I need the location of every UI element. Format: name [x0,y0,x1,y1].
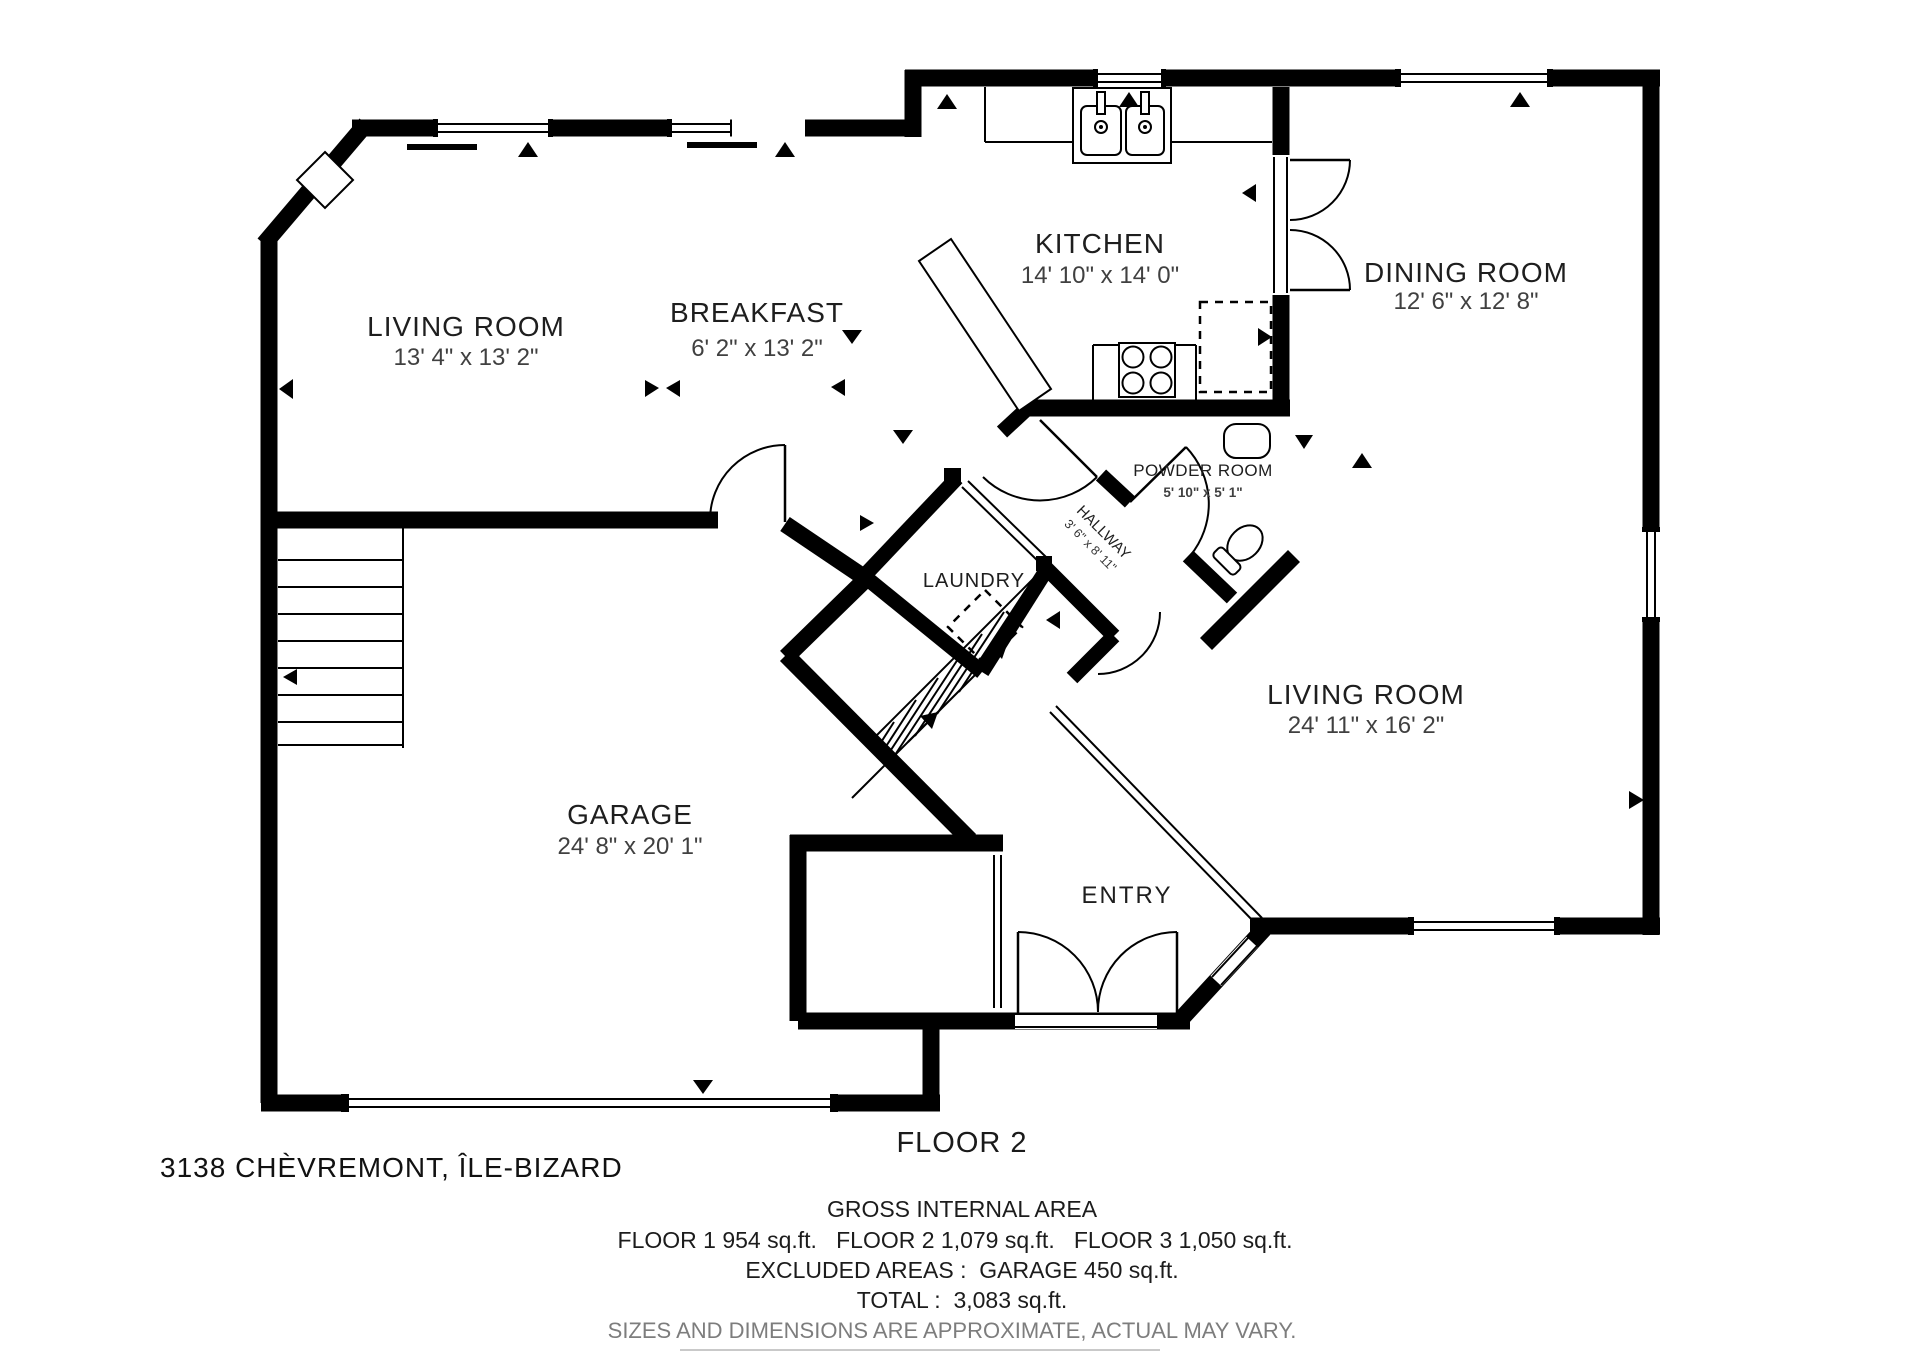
double-sink [1073,88,1171,163]
total-area-line: TOTAL : 3,083 sq.ft. [857,1287,1068,1313]
label-kitchen: KITCHEN [1035,228,1165,259]
label-dining-room: DINING ROOM [1364,257,1568,288]
label-entry: ENTRY [1082,882,1173,909]
cooktop-stove [1119,343,1175,397]
dims-living-room-right: 24' 11" x 16' 2" [1288,712,1445,739]
door-hallway-top [983,420,1097,500]
door-entry-double [1015,932,1177,1029]
address: 3138 CHÈVREMONT, ÎLE-BIZARD [160,1152,623,1183]
window-kitchen-sink [1093,69,1166,87]
dims-garage: 24' 8" x 20' 1" [558,833,703,860]
door-kitchen-dining-double [1271,155,1350,295]
toilet [1212,518,1270,576]
captions: FLOOR 2 3138 CHÈVREMONT, ÎLE-BIZARD [160,1127,1028,1183]
dims-breakfast: 6' 2" x 13' 2" [691,335,823,362]
window-living-right-wall [1642,527,1660,622]
dims-kitchen: 14' 10" x 14' 0" [1021,262,1179,289]
footer-area-summary: GROSS INTERNAL AREA FLOOR 1 954 sq.ft. F… [608,1196,1297,1350]
window-living-bottom [1408,917,1560,935]
floor-caption: FLOOR 2 [896,1127,1027,1159]
closet-sliding-door [994,855,1001,1008]
window-entry-chamfer [1212,938,1257,985]
wall-opening-top [732,119,805,137]
label-living-room-right: LIVING ROOM [1267,679,1465,710]
refrigerator [1200,302,1271,392]
door-breakfast-garage [710,445,785,529]
garage-staircase [278,528,403,748]
vanity-sink [1224,424,1270,458]
garage-door [341,1094,838,1112]
excluded-areas-line: EXCLUDED AREAS : GARAGE 450 sq.ft. [745,1257,1178,1283]
window-dining [1395,69,1553,87]
floors-area-line: FLOOR 1 954 sq.ft. FLOOR 2 1,079 sq.ft. … [618,1227,1293,1253]
label-laundry: LAUNDRY [923,570,1025,592]
gross-internal-area-title: GROSS INTERNAL AREA [827,1196,1098,1222]
wall-markers [279,92,1644,1094]
floor-plan-page: LIVING ROOM 13' 4" x 13' 2" BREAKFAST 6'… [0,0,1920,1357]
dims-dining-room: 12' 6" x 12' 8" [1394,288,1539,315]
dims-powder-room: 5' 10" x 5' 1" [1163,485,1242,500]
dims-living-room-left: 13' 4" x 13' 2" [394,344,539,371]
disclaimer: SIZES AND DIMENSIONS ARE APPROXIMATE, AC… [608,1318,1297,1343]
label-powder-room: POWDER ROOM [1133,461,1273,480]
label-garage: GARAGE [567,799,693,830]
label-living-room-left: LIVING ROOM [367,311,565,342]
floor-plan-drawing: LIVING ROOM 13' 4" x 13' 2" BREAKFAST 6'… [0,0,1920,1357]
main-staircase [852,567,1045,798]
label-breakfast: BREAKFAST [670,297,844,328]
